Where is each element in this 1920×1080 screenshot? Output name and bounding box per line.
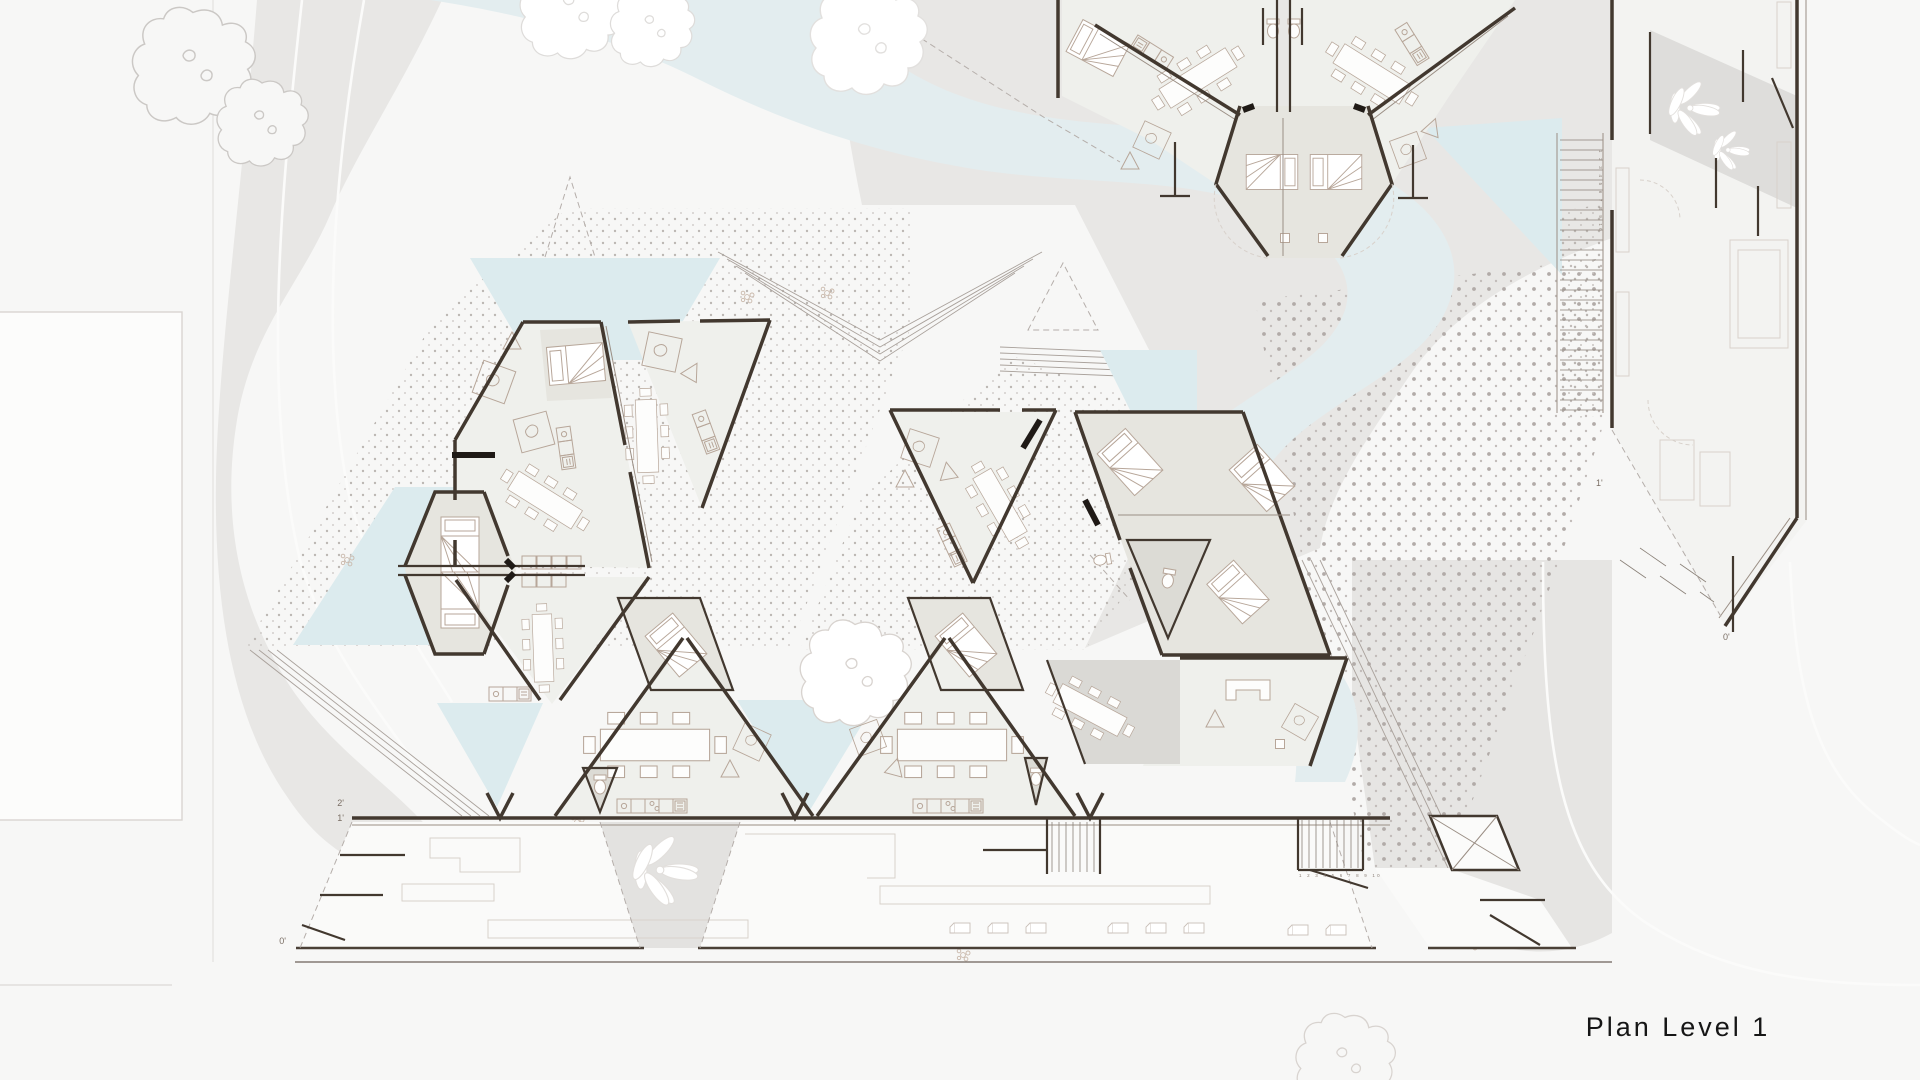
wing-floor-dots <box>1558 205 1604 420</box>
deck-west <box>300 822 640 948</box>
adjacent-sheet-outline <box>0 312 182 820</box>
level-marker: 1' <box>337 813 344 823</box>
stair-tread-numbers: 1 2 3 4 5 6 7 8 9 10 <box>1299 873 1382 878</box>
level-marker: 2' <box>337 798 344 808</box>
plan-caption: Plan Level 1 <box>1586 1012 1771 1042</box>
level-marker: 0' <box>279 936 286 946</box>
architectural-plan-sheet: 1 2 3 4 5 6 7 8 9 10 0' 1' <box>0 0 1920 1080</box>
level-marker: 1' <box>1596 478 1603 488</box>
level-marker: 0' <box>1723 632 1730 642</box>
stair-tread-numbers: 1 2 3 4 5 6 7 8 9 10 <box>1598 150 1603 233</box>
floor-plan-canvas: 1 2 3 4 5 6 7 8 9 10 0' 1' <box>0 0 1920 1080</box>
